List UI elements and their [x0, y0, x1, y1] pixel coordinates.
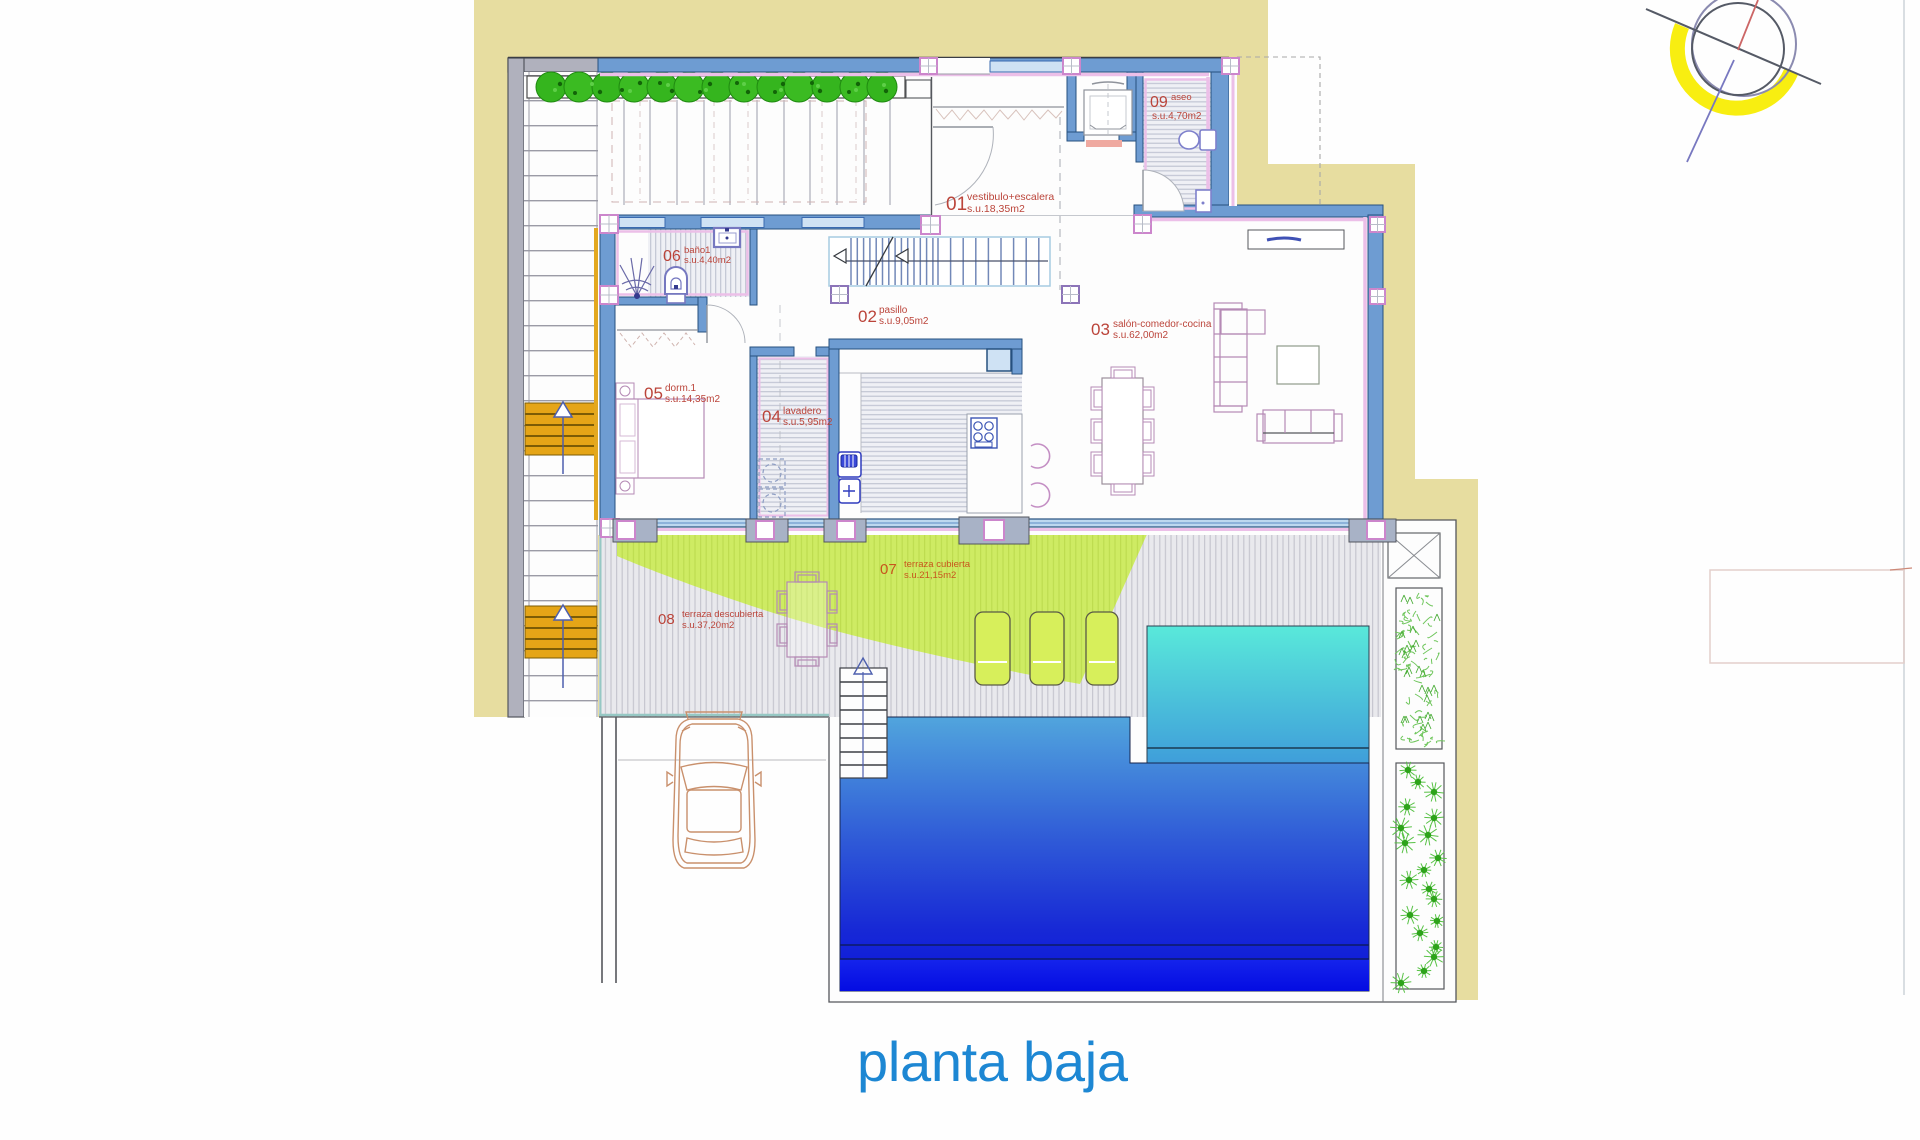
svg-text:dorm.1: dorm.1 [665, 383, 697, 394]
svg-text:02: 02 [858, 307, 877, 326]
svg-text:09: 09 [1150, 94, 1168, 111]
svg-text:vestibulo+escalera: vestibulo+escalera [967, 191, 1054, 203]
svg-text:04: 04 [762, 407, 781, 426]
svg-text:06: 06 [663, 248, 681, 265]
svg-text:s.u.18,35m2: s.u.18,35m2 [967, 203, 1025, 215]
svg-text:terraza cubierta: terraza cubierta [904, 559, 971, 570]
svg-text:s.u.21,15m2: s.u.21,15m2 [904, 570, 956, 581]
svg-text:planta baja: planta baja [857, 1030, 1129, 1093]
svg-text:terraza descubierta: terraza descubierta [682, 609, 764, 620]
svg-text:05: 05 [644, 384, 663, 403]
svg-text:s.u.4,70m2: s.u.4,70m2 [1152, 111, 1202, 122]
svg-text:s.u.9,05m2: s.u.9,05m2 [879, 316, 929, 327]
svg-text:salón-comedor-cocina: salón-comedor-cocina [1113, 319, 1212, 330]
svg-text:03: 03 [1091, 320, 1110, 339]
svg-text:01: 01 [946, 194, 967, 215]
svg-text:s.u.37,20m2: s.u.37,20m2 [682, 620, 734, 631]
svg-text:s.u.62,00m2: s.u.62,00m2 [1113, 330, 1168, 341]
svg-text:pasillo: pasillo [879, 305, 908, 316]
svg-text:s.u.4,40m2: s.u.4,40m2 [684, 255, 731, 266]
svg-text:aseo: aseo [1171, 92, 1192, 103]
svg-text:s.u.14,35m2: s.u.14,35m2 [665, 394, 720, 405]
svg-text:07: 07 [880, 561, 897, 578]
svg-text:08: 08 [658, 611, 675, 628]
svg-text:s.u.5,95m2: s.u.5,95m2 [783, 417, 833, 428]
svg-text:lavadero: lavadero [783, 406, 822, 417]
